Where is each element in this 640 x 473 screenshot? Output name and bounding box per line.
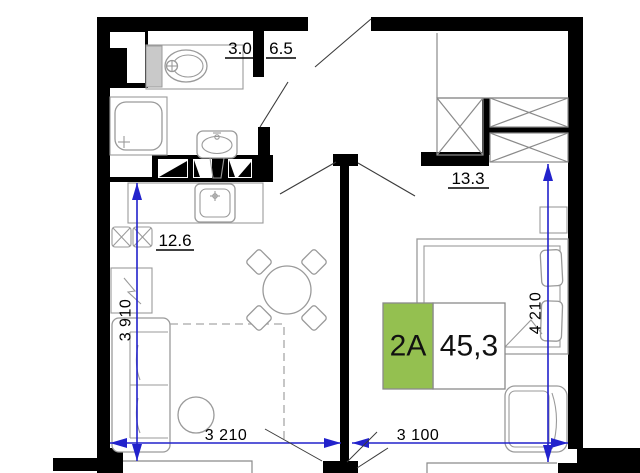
living-door-leaf <box>280 162 336 194</box>
entrance-door-leaf <box>315 19 371 67</box>
dining-set <box>246 249 328 332</box>
dim-left-vertical: 3 910 <box>118 299 135 342</box>
room-label-bathroom: 3.0 <box>228 39 252 58</box>
shower-tray <box>110 97 167 155</box>
nightstand <box>540 207 567 233</box>
closet-units <box>437 33 568 162</box>
hob-units <box>112 227 152 247</box>
type-badge: 2A 45,3 <box>383 303 505 389</box>
wardrobe-box-3 <box>490 133 568 162</box>
badge-area-value: 45,3 <box>440 330 498 363</box>
badge-unit-type: 2A <box>390 330 427 363</box>
room-label-kitchen-living: 12.6 <box>158 231 191 250</box>
kitchen-sink <box>195 184 235 222</box>
floor-plan: 3 910 4 210 3 210 3 100 3.0 6.5 13.3 12.… <box>0 0 640 473</box>
bedroom-door-leaf <box>358 163 415 196</box>
dim-bottom-left: 3 210 <box>205 427 248 444</box>
wardrobe-box-2 <box>490 98 568 127</box>
room-label-hallway: 6.5 <box>269 39 293 58</box>
room-label-bedroom: 13.3 <box>451 169 484 188</box>
dim-right-vertical: 4 210 <box>528 292 545 335</box>
wardrobe-box-1 <box>437 98 483 155</box>
bathroom-door-leaf <box>260 82 288 127</box>
dim-bottom-right: 3 100 <box>397 427 440 444</box>
